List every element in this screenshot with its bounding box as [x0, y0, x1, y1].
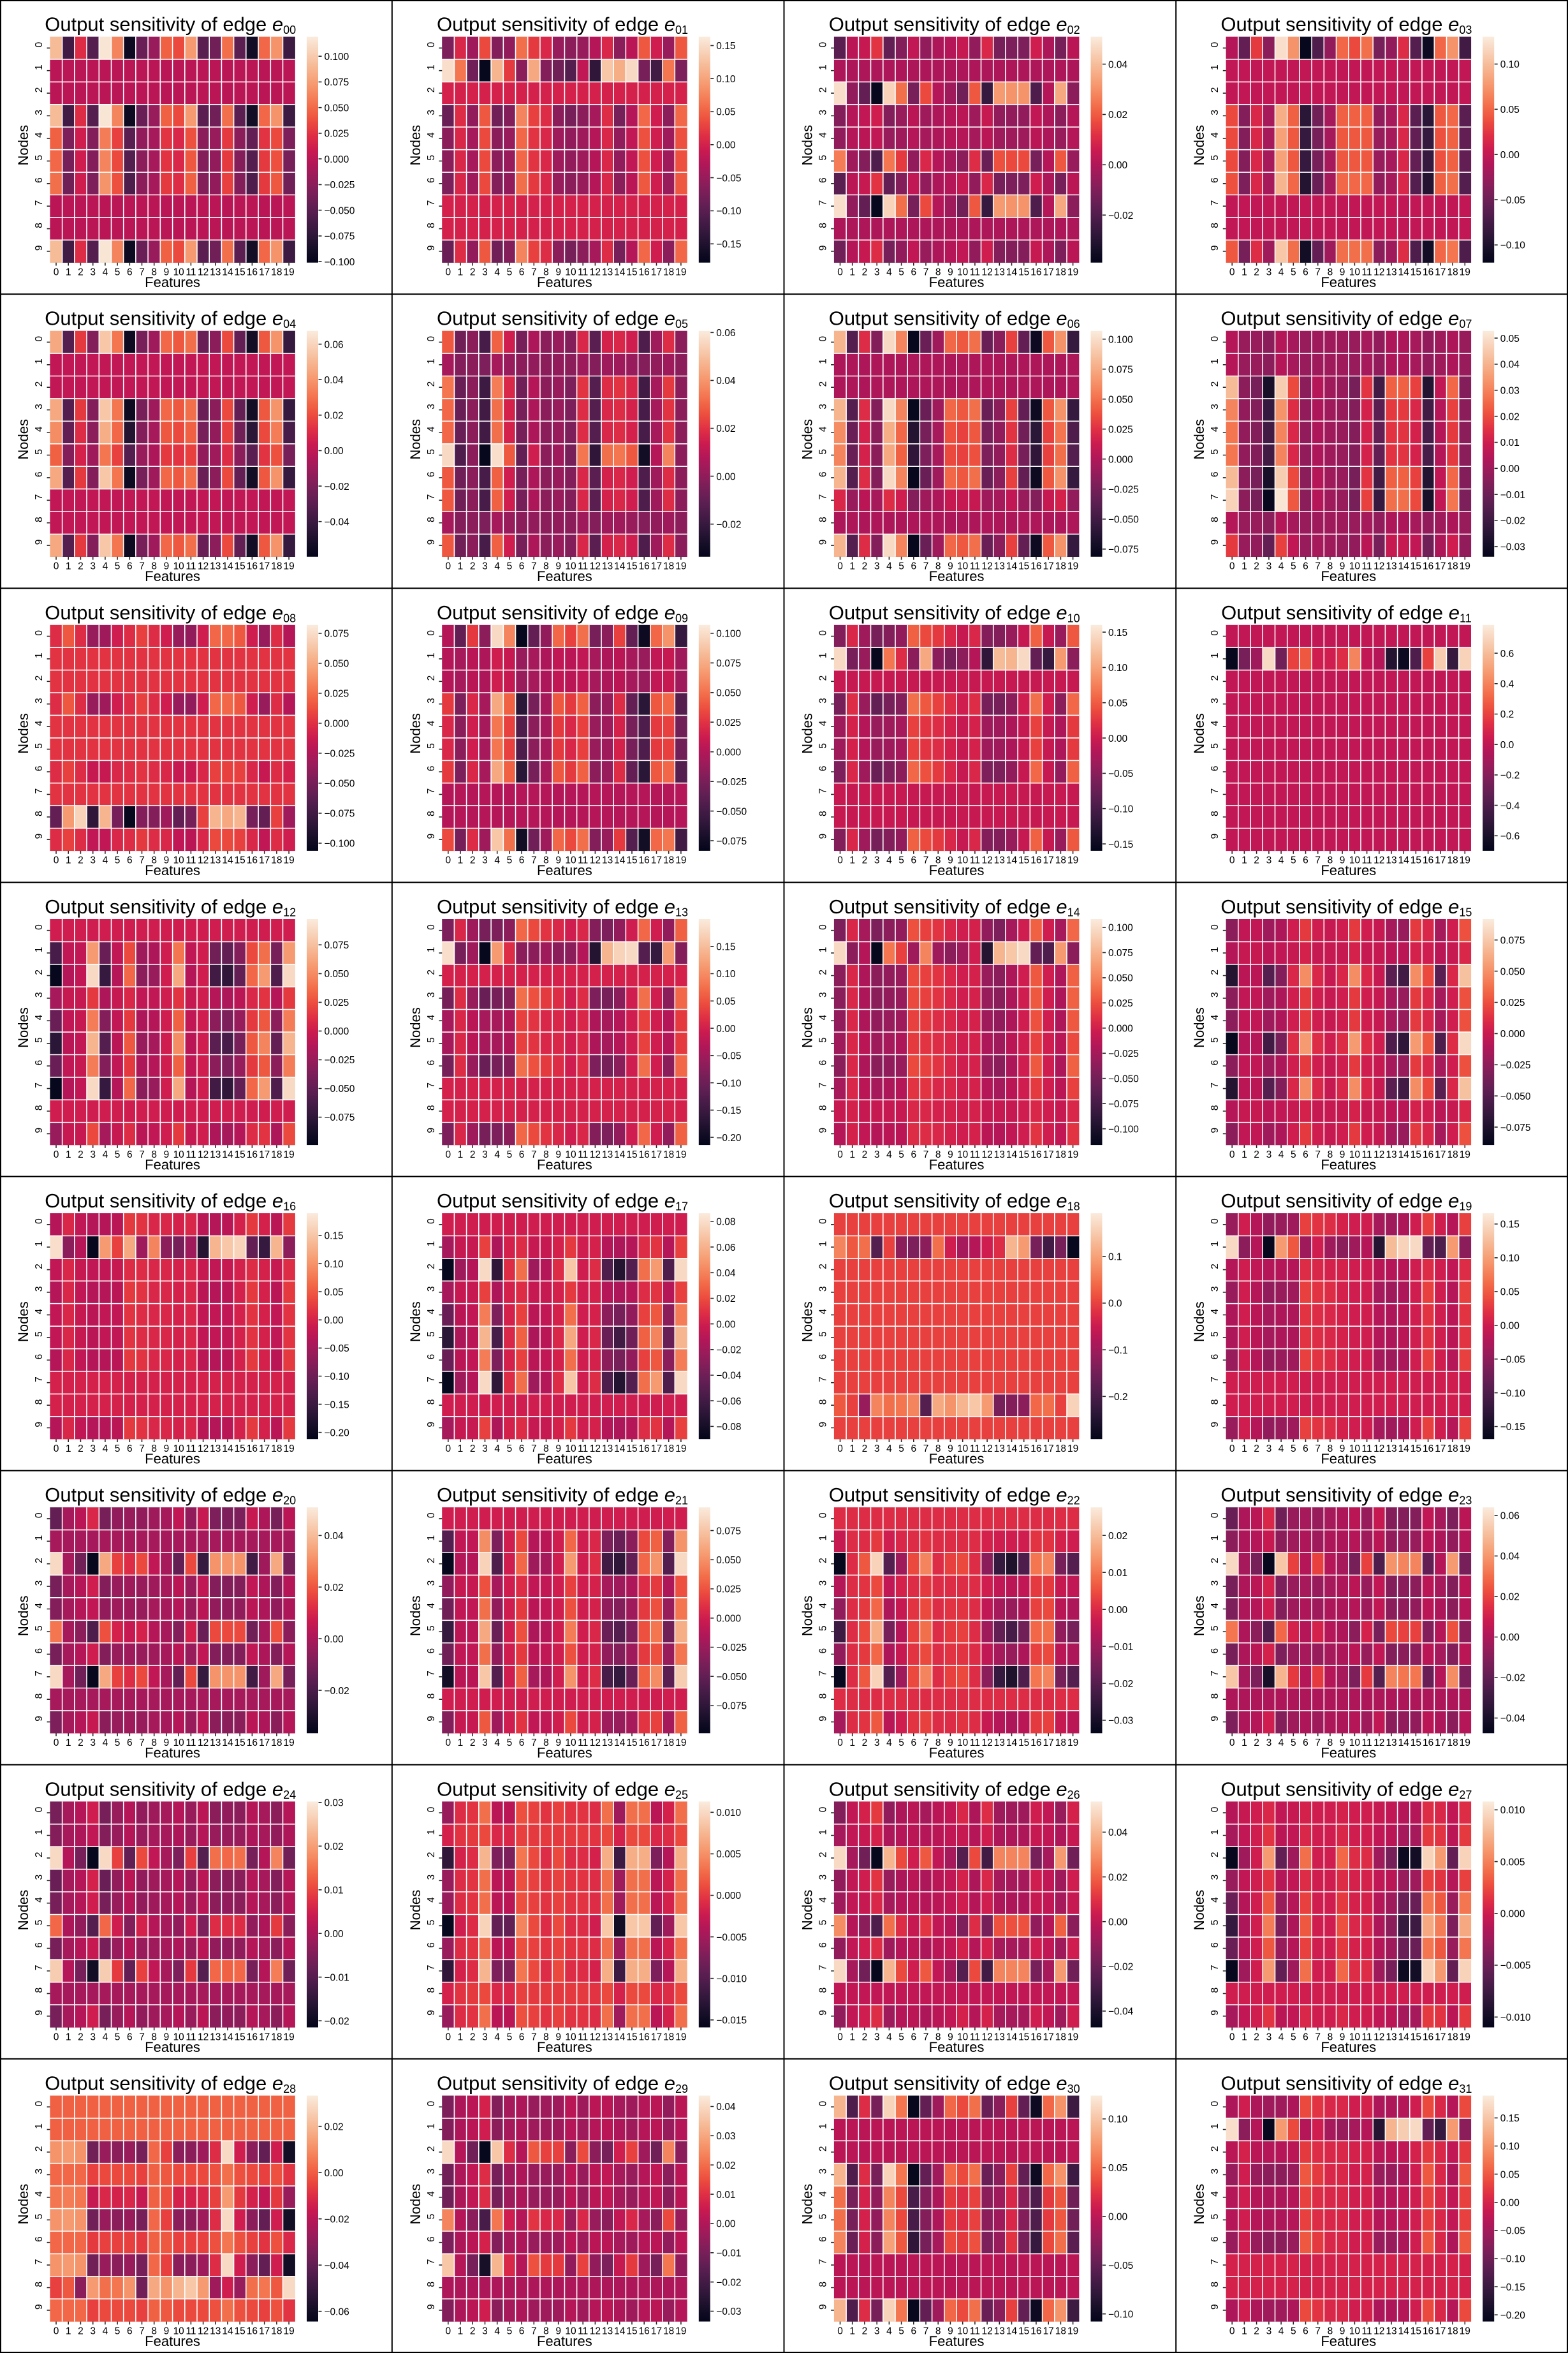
svg-text:0.025: 0.025 — [325, 129, 349, 140]
svg-text:0.01: 0.01 — [716, 2190, 735, 2201]
svg-text:−0.01: −0.01 — [325, 1972, 349, 1983]
svg-text:0.0: 0.0 — [1108, 1299, 1122, 1309]
svg-text:0.01: 0.01 — [1500, 438, 1520, 448]
svg-text:0.03: 0.03 — [716, 2131, 735, 2142]
svg-text:0.08: 0.08 — [716, 1217, 735, 1228]
svg-text:0.04: 0.04 — [1500, 1551, 1520, 1562]
svg-text:0.0: 0.0 — [1500, 740, 1514, 751]
svg-text:0.4: 0.4 — [1500, 679, 1514, 690]
svg-text:0.000: 0.000 — [1108, 454, 1133, 465]
svg-text:−0.075: −0.075 — [325, 809, 355, 820]
svg-text:0.005: 0.005 — [716, 1849, 741, 1860]
svg-text:−0.15: −0.15 — [1500, 2282, 1525, 2293]
svg-text:0.000: 0.000 — [325, 1026, 349, 1037]
svg-text:Output sensitivity of edge e12: Output sensitivity of edge e12 — [45, 896, 296, 919]
svg-text:0.00: 0.00 — [325, 446, 344, 457]
svg-text:−0.005: −0.005 — [716, 1932, 747, 1943]
svg-text:−0.15: −0.15 — [716, 239, 741, 250]
svg-text:−0.075: −0.075 — [325, 232, 355, 242]
svg-text:0.05: 0.05 — [1108, 2163, 1127, 2174]
svg-text:0.15: 0.15 — [716, 942, 735, 953]
svg-text:−0.075: −0.075 — [716, 1701, 747, 1712]
svg-text:0.075: 0.075 — [325, 940, 349, 951]
svg-text:0.075: 0.075 — [1500, 935, 1525, 946]
svg-text:−0.010: −0.010 — [716, 1973, 747, 1984]
svg-text:Output sensitivity of edge e22: Output sensitivity of edge e22 — [829, 1484, 1080, 1507]
svg-text:0.00: 0.00 — [1108, 1917, 1128, 1928]
svg-text:−0.08: −0.08 — [716, 1422, 741, 1433]
svg-text:Output sensitivity of edge e10: Output sensitivity of edge e10 — [829, 601, 1080, 625]
svg-text:0.100: 0.100 — [325, 52, 349, 63]
svg-text:−0.025: −0.025 — [716, 1642, 747, 1653]
svg-text:0.025: 0.025 — [1108, 424, 1133, 435]
svg-text:0.025: 0.025 — [716, 718, 741, 728]
svg-text:0.005: 0.005 — [1500, 1857, 1525, 1868]
svg-text:0.02: 0.02 — [1500, 411, 1520, 422]
svg-text:0.04: 0.04 — [325, 375, 344, 386]
svg-text:−0.10: −0.10 — [1500, 2254, 1526, 2265]
svg-text:−0.04: −0.04 — [716, 1371, 742, 1382]
svg-text:−0.100: −0.100 — [1108, 1124, 1139, 1135]
svg-text:0.000: 0.000 — [1500, 1029, 1525, 1040]
svg-text:−0.100: −0.100 — [325, 839, 355, 850]
svg-text:Output sensitivity of edge e18: Output sensitivity of edge e18 — [829, 1190, 1080, 1213]
svg-text:0.100: 0.100 — [1108, 334, 1133, 345]
svg-text:−0.03: −0.03 — [1500, 542, 1525, 553]
svg-text:−0.15: −0.15 — [325, 1399, 349, 1410]
svg-text:0.15: 0.15 — [1108, 628, 1127, 638]
svg-text:−0.075: −0.075 — [1108, 1099, 1139, 1110]
svg-text:−0.04: −0.04 — [325, 2261, 350, 2271]
svg-text:0.06: 0.06 — [716, 1243, 735, 1253]
svg-text:Output sensitivity of edge e17: Output sensitivity of edge e17 — [437, 1190, 688, 1213]
svg-text:0.6: 0.6 — [1500, 649, 1514, 660]
svg-text:−0.05: −0.05 — [1108, 769, 1133, 779]
svg-text:0.00: 0.00 — [1500, 1632, 1520, 1643]
svg-text:0.05: 0.05 — [716, 996, 735, 1007]
svg-text:0.000: 0.000 — [1500, 1909, 1525, 1920]
svg-text:0.10: 0.10 — [1108, 2114, 1128, 2125]
svg-text:−0.050: −0.050 — [716, 806, 747, 817]
svg-text:0.01: 0.01 — [325, 1885, 344, 1896]
svg-text:0.10: 0.10 — [1500, 1253, 1520, 1264]
svg-text:0.00: 0.00 — [716, 1024, 736, 1035]
svg-text:0.00: 0.00 — [325, 1634, 344, 1645]
svg-text:0.000: 0.000 — [716, 1891, 741, 1901]
svg-text:−0.050: −0.050 — [716, 1672, 747, 1683]
svg-text:0.025: 0.025 — [716, 1584, 741, 1595]
svg-text:−0.4: −0.4 — [1500, 800, 1520, 811]
svg-text:Output sensitivity of edge e07: Output sensitivity of edge e07 — [1220, 307, 1472, 331]
svg-text:−0.02: −0.02 — [1500, 516, 1525, 527]
svg-text:Output sensitivity of edge e08: Output sensitivity of edge e08 — [45, 601, 296, 625]
svg-text:0.000: 0.000 — [716, 747, 741, 758]
svg-text:0.03: 0.03 — [1500, 386, 1520, 397]
svg-text:−0.025: −0.025 — [325, 1055, 355, 1066]
svg-text:−0.20: −0.20 — [325, 1427, 350, 1438]
svg-text:−0.02: −0.02 — [716, 1345, 741, 1356]
svg-text:Output sensitivity of edge e01: Output sensitivity of edge e01 — [437, 13, 688, 37]
svg-text:−0.05: −0.05 — [1500, 2226, 1525, 2237]
svg-text:−0.05: −0.05 — [1500, 195, 1525, 206]
svg-text:0.10: 0.10 — [1500, 2141, 1520, 2152]
svg-text:0.2: 0.2 — [1500, 709, 1514, 720]
svg-text:−0.6: −0.6 — [1500, 831, 1520, 842]
svg-text:−0.10: −0.10 — [1108, 2309, 1134, 2320]
svg-text:0.00: 0.00 — [325, 2168, 344, 2179]
svg-text:0.050: 0.050 — [1108, 973, 1133, 984]
svg-text:−0.10: −0.10 — [716, 1078, 742, 1089]
svg-text:−0.05: −0.05 — [1108, 2261, 1133, 2271]
svg-text:−0.02: −0.02 — [1108, 1962, 1133, 1973]
svg-text:0.100: 0.100 — [1108, 923, 1133, 934]
svg-text:0.05: 0.05 — [1500, 334, 1520, 344]
svg-text:0.050: 0.050 — [325, 103, 349, 114]
svg-text:0.075: 0.075 — [716, 1526, 741, 1537]
svg-text:0.04: 0.04 — [1108, 59, 1128, 70]
svg-text:−0.10: −0.10 — [325, 1371, 350, 1382]
svg-text:−0.2: −0.2 — [1500, 771, 1520, 781]
svg-text:0.15: 0.15 — [1500, 2113, 1520, 2124]
svg-text:−0.010: −0.010 — [1500, 2012, 1531, 2023]
svg-text:0.00: 0.00 — [716, 2219, 736, 2230]
svg-text:−0.050: −0.050 — [1108, 1073, 1139, 1084]
svg-text:−0.15: −0.15 — [1500, 1422, 1525, 1433]
svg-text:Output sensitivity of edge e16: Output sensitivity of edge e16 — [45, 1190, 296, 1213]
svg-text:0.04: 0.04 — [716, 2102, 736, 2113]
svg-text:0.000: 0.000 — [1108, 1024, 1133, 1035]
svg-text:−0.075: −0.075 — [325, 1112, 355, 1123]
svg-text:−0.025: −0.025 — [716, 777, 747, 788]
svg-text:−0.005: −0.005 — [1500, 1961, 1531, 1972]
svg-text:−0.02: −0.02 — [325, 1686, 349, 1697]
svg-text:−0.2: −0.2 — [1108, 1392, 1128, 1403]
svg-text:0.04: 0.04 — [1500, 360, 1520, 371]
svg-text:0.05: 0.05 — [1500, 2169, 1520, 2180]
svg-text:0.10: 0.10 — [325, 1259, 344, 1270]
svg-text:−0.050: −0.050 — [325, 205, 355, 216]
svg-text:−0.04: −0.04 — [1500, 1713, 1526, 1724]
svg-text:−0.10: −0.10 — [1500, 240, 1526, 251]
svg-text:−0.15: −0.15 — [716, 1105, 741, 1116]
svg-text:Output sensitivity of edge e29: Output sensitivity of edge e29 — [437, 2072, 688, 2096]
svg-text:−0.01: −0.01 — [716, 2248, 741, 2259]
svg-text:Output sensitivity of edge e04: Output sensitivity of edge e04 — [45, 307, 296, 331]
svg-text:−0.025: −0.025 — [1108, 484, 1139, 495]
svg-text:−0.05: −0.05 — [716, 1051, 741, 1062]
svg-text:0.050: 0.050 — [1108, 394, 1133, 405]
svg-text:−0.02: −0.02 — [1500, 1673, 1525, 1684]
svg-text:0.025: 0.025 — [1500, 998, 1525, 1008]
svg-text:0.00: 0.00 — [1108, 2212, 1128, 2223]
svg-text:0.04: 0.04 — [716, 376, 736, 387]
svg-text:0.050: 0.050 — [325, 659, 349, 670]
svg-text:Output sensitivity of edge e20: Output sensitivity of edge e20 — [45, 1484, 296, 1507]
svg-text:0.00: 0.00 — [325, 1315, 344, 1326]
svg-text:−0.02: −0.02 — [325, 2214, 349, 2225]
svg-text:0.01: 0.01 — [1108, 1568, 1127, 1579]
svg-text:−0.10: −0.10 — [1500, 1388, 1526, 1399]
svg-text:−0.015: −0.015 — [716, 2016, 747, 2026]
svg-text:−0.025: −0.025 — [1500, 1060, 1531, 1071]
svg-text:0.04: 0.04 — [1108, 1827, 1128, 1838]
svg-text:−0.100: −0.100 — [325, 257, 355, 268]
svg-text:0.00: 0.00 — [716, 1319, 736, 1330]
svg-text:−0.01: −0.01 — [1108, 1642, 1133, 1653]
svg-text:−0.20: −0.20 — [716, 1133, 742, 1144]
svg-text:0.02: 0.02 — [325, 1582, 344, 1593]
svg-text:Output sensitivity of edge e14: Output sensitivity of edge e14 — [829, 896, 1080, 919]
svg-text:Output sensitivity of edge e09: Output sensitivity of edge e09 — [437, 601, 688, 625]
svg-text:Output sensitivity of edge e15: Output sensitivity of edge e15 — [1220, 896, 1472, 919]
svg-text:−0.025: −0.025 — [325, 180, 355, 191]
svg-text:0.02: 0.02 — [325, 1841, 344, 1852]
svg-text:−0.075: −0.075 — [1108, 545, 1139, 556]
svg-text:−0.02: −0.02 — [716, 519, 741, 530]
svg-text:Output sensitivity of edge e26: Output sensitivity of edge e26 — [829, 1778, 1080, 1801]
svg-text:0.10: 0.10 — [716, 969, 736, 980]
svg-text:0.000: 0.000 — [325, 154, 349, 165]
svg-text:0.00: 0.00 — [716, 140, 736, 151]
svg-text:−0.050: −0.050 — [1108, 515, 1139, 526]
svg-text:Output sensitivity of edge e11: Output sensitivity of edge e11 — [1221, 601, 1472, 625]
svg-text:0.05: 0.05 — [1108, 698, 1127, 709]
svg-text:−0.03: −0.03 — [716, 2306, 741, 2317]
svg-text:−0.075: −0.075 — [1500, 1123, 1531, 1133]
svg-text:0.1: 0.1 — [1108, 1252, 1122, 1263]
svg-text:−0.15: −0.15 — [1108, 839, 1133, 850]
svg-text:−0.04: −0.04 — [325, 517, 350, 527]
svg-text:0.00: 0.00 — [1500, 464, 1520, 475]
svg-text:−0.1: −0.1 — [1108, 1345, 1128, 1356]
svg-text:Output sensitivity of edge e02: Output sensitivity of edge e02 — [829, 13, 1080, 37]
svg-text:0.03: 0.03 — [325, 1798, 344, 1809]
svg-text:0.05: 0.05 — [716, 107, 735, 118]
svg-text:−0.02: −0.02 — [325, 2016, 349, 2027]
svg-text:−0.02: −0.02 — [1108, 210, 1133, 221]
svg-text:Output sensitivity of edge e30: Output sensitivity of edge e30 — [829, 2072, 1080, 2096]
svg-text:0.050: 0.050 — [716, 688, 741, 699]
svg-text:0.02: 0.02 — [1108, 1872, 1127, 1883]
svg-text:Output sensitivity of edge e19: Output sensitivity of edge e19 — [1220, 1190, 1472, 1213]
svg-text:Output sensitivity of edge e27: Output sensitivity of edge e27 — [1220, 1778, 1472, 1801]
svg-text:0.075: 0.075 — [325, 629, 349, 640]
svg-text:0.04: 0.04 — [716, 1268, 736, 1279]
svg-text:Output sensitivity of edge e23: Output sensitivity of edge e23 — [1220, 1484, 1472, 1507]
svg-text:−0.025: −0.025 — [325, 749, 355, 760]
svg-text:−0.075: −0.075 — [716, 836, 747, 847]
svg-text:−0.10: −0.10 — [716, 206, 742, 217]
svg-text:0.075: 0.075 — [1108, 364, 1133, 375]
svg-text:−0.050: −0.050 — [325, 1084, 355, 1095]
svg-text:0.02: 0.02 — [325, 2121, 344, 2132]
svg-text:0.10: 0.10 — [1108, 663, 1128, 674]
svg-text:−0.02: −0.02 — [325, 482, 349, 492]
svg-text:0.050: 0.050 — [1500, 966, 1525, 977]
svg-text:0.04: 0.04 — [325, 1531, 344, 1542]
svg-text:0.00: 0.00 — [325, 1929, 344, 1940]
svg-text:0.05: 0.05 — [1500, 105, 1520, 115]
svg-text:Output sensitivity of edge e13: Output sensitivity of edge e13 — [437, 896, 688, 919]
svg-text:−0.02: −0.02 — [716, 2277, 741, 2288]
svg-text:−0.04: −0.04 — [1108, 2007, 1134, 2017]
svg-text:Output sensitivity of edge e28: Output sensitivity of edge e28 — [45, 2072, 296, 2096]
svg-text:0.02: 0.02 — [716, 424, 735, 434]
svg-text:−0.050: −0.050 — [325, 779, 355, 790]
svg-text:Output sensitivity of edge e06: Output sensitivity of edge e06 — [829, 307, 1080, 331]
svg-text:0.05: 0.05 — [325, 1287, 344, 1298]
svg-text:0.010: 0.010 — [716, 1808, 741, 1818]
svg-text:−0.01: −0.01 — [1500, 490, 1525, 501]
svg-text:0.00: 0.00 — [1500, 1321, 1520, 1332]
svg-text:0.15: 0.15 — [716, 41, 735, 52]
svg-text:−0.05: −0.05 — [325, 1343, 349, 1354]
svg-text:0.00: 0.00 — [1108, 734, 1128, 744]
svg-text:−0.03: −0.03 — [1108, 1716, 1133, 1727]
svg-text:0.15: 0.15 — [1500, 1220, 1520, 1230]
svg-text:Output sensitivity of edge e25: Output sensitivity of edge e25 — [437, 1778, 688, 1801]
svg-text:−0.10: −0.10 — [1108, 804, 1134, 815]
svg-text:0.000: 0.000 — [325, 719, 349, 730]
svg-text:−0.02: −0.02 — [1108, 1679, 1133, 1690]
svg-text:Output sensitivity of edge e31: Output sensitivity of edge e31 — [1220, 2072, 1472, 2096]
svg-text:0.100: 0.100 — [716, 629, 741, 640]
svg-text:0.075: 0.075 — [325, 77, 349, 88]
svg-text:0.075: 0.075 — [1108, 948, 1133, 959]
svg-text:0.050: 0.050 — [325, 969, 349, 980]
svg-text:0.02: 0.02 — [1108, 1531, 1127, 1542]
svg-text:−0.20: −0.20 — [1500, 2310, 1526, 2321]
svg-text:0.15: 0.15 — [325, 1231, 344, 1242]
svg-text:0.010: 0.010 — [1500, 1805, 1525, 1816]
svg-text:Output sensitivity of edge e24: Output sensitivity of edge e24 — [45, 1778, 296, 1801]
svg-text:0.02: 0.02 — [325, 411, 344, 422]
svg-text:0.00: 0.00 — [1108, 160, 1128, 171]
svg-text:0.02: 0.02 — [1108, 110, 1127, 121]
svg-text:−0.06: −0.06 — [325, 2306, 349, 2317]
svg-text:−0.050: −0.050 — [1500, 1091, 1531, 1102]
svg-text:Output sensitivity of edge e00: Output sensitivity of edge e00 — [45, 13, 296, 37]
svg-text:0.00: 0.00 — [1500, 150, 1520, 161]
svg-text:0.06: 0.06 — [325, 339, 344, 350]
svg-text:0.00: 0.00 — [1108, 1605, 1128, 1616]
svg-text:0.10: 0.10 — [1500, 59, 1520, 70]
svg-text:−0.05: −0.05 — [716, 173, 741, 184]
svg-text:0.02: 0.02 — [716, 2160, 735, 2171]
svg-text:0.06: 0.06 — [716, 328, 735, 339]
svg-text:0.05: 0.05 — [1500, 1287, 1520, 1298]
svg-text:0.02: 0.02 — [1500, 1592, 1520, 1603]
svg-text:0.025: 0.025 — [325, 998, 349, 1008]
svg-text:Output sensitivity of edge e21: Output sensitivity of edge e21 — [437, 1484, 688, 1507]
svg-text:0.075: 0.075 — [716, 658, 741, 669]
svg-text:−0.06: −0.06 — [716, 1396, 741, 1407]
svg-text:0.00: 0.00 — [716, 471, 736, 482]
svg-text:0.10: 0.10 — [716, 74, 736, 85]
svg-text:Output sensitivity of edge e03: Output sensitivity of edge e03 — [1220, 13, 1472, 37]
svg-text:0.02: 0.02 — [716, 1294, 735, 1304]
svg-text:0.025: 0.025 — [1108, 998, 1133, 1009]
svg-text:0.06: 0.06 — [1500, 1511, 1520, 1522]
svg-text:0.025: 0.025 — [325, 689, 349, 700]
svg-text:0.050: 0.050 — [716, 1555, 741, 1566]
svg-text:−0.025: −0.025 — [1108, 1049, 1139, 1059]
svg-text:0.00: 0.00 — [1500, 2198, 1520, 2209]
svg-text:Output sensitivity of edge e05: Output sensitivity of edge e05 — [437, 307, 688, 331]
svg-text:−0.05: −0.05 — [1500, 1354, 1525, 1365]
svg-text:0.000: 0.000 — [716, 1614, 741, 1625]
